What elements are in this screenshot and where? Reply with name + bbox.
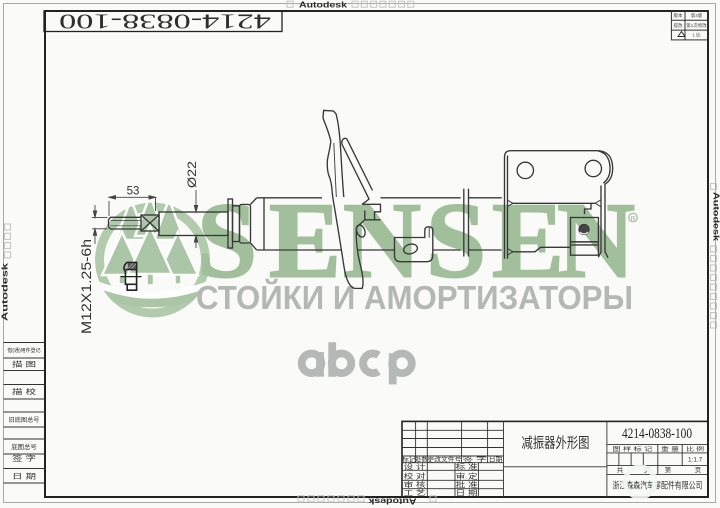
svg-text:审 核: 审 核 [404, 480, 426, 489]
svg-text:底图总号: 底图总号 [11, 442, 37, 451]
svg-text:图 样 标 记: 图 样 标 记 [612, 445, 653, 453]
svg-text:描 图: 描 图 [12, 360, 36, 369]
svg-text:更改文件号: 更改文件号 [427, 454, 461, 463]
svg-text:签 字: 签 字 [463, 454, 487, 463]
svg-text:批 准: 批 准 [456, 480, 478, 489]
svg-text:第4版: 第4版 [691, 12, 703, 19]
svg-text:СТОЙКИ И АМОРТИЗАТОРЫ: СТОЙКИ И АМОРТИЗАТОРЫ [196, 278, 633, 316]
svg-text:日 期: 日 期 [12, 473, 36, 481]
svg-text:旧底图总号: 旧底图总号 [9, 416, 40, 424]
svg-text:重 量: 重 量 [661, 445, 680, 453]
svg-text:第: 第 [665, 465, 672, 474]
svg-text:日期: 日期 [489, 455, 503, 463]
svg-text:M12X1.25-6h: M12X1.25-6h [78, 239, 94, 334]
svg-text:版本: 版本 [674, 12, 683, 19]
svg-text:借(通)用件登记: 借(通)用件登记 [7, 347, 40, 354]
svg-text:Autodesk: Autodesk [368, 497, 416, 507]
svg-text:日 期: 日 期 [456, 489, 478, 497]
svg-text:1:1.7: 1:1.7 [688, 457, 703, 464]
svg-text:工 艺: 工 艺 [404, 489, 426, 497]
svg-text:53: 53 [127, 186, 140, 198]
svg-text:减振器外形图: 减振器外形图 [522, 435, 590, 452]
svg-text:Autodesk: Autodesk [299, 0, 347, 9]
svg-text:标 准: 标 准 [456, 462, 478, 471]
svg-text:R: R [631, 215, 636, 222]
svg-text:Ø22: Ø22 [185, 161, 199, 188]
svg-text:4214-0838-100: 4214-0838-100 [622, 426, 692, 442]
svg-text:比 例: 比 例 [686, 445, 705, 453]
svg-text:提改: 提改 [674, 22, 683, 29]
svg-text:处数: 处数 [415, 454, 429, 463]
svg-text:Autodesk: Autodesk [0, 263, 10, 321]
svg-text:共: 共 [617, 465, 624, 474]
svg-text:1 比: 1 比 [692, 32, 701, 39]
svg-text:4214-0838-100: 4214-0838-100 [59, 10, 271, 34]
svg-text:第1次修改: 第1次修改 [686, 22, 707, 29]
svg-text:描 校: 描 校 [12, 387, 36, 396]
svg-text:签 字: 签 字 [12, 454, 36, 463]
svg-text:Autodesk: Autodesk [712, 192, 720, 241]
svg-text:页: 页 [695, 466, 701, 474]
svg-text:校 对: 校 对 [404, 471, 426, 480]
svg-text:设 计: 设 计 [404, 462, 426, 471]
svg-text:审 定: 审 定 [456, 471, 478, 480]
